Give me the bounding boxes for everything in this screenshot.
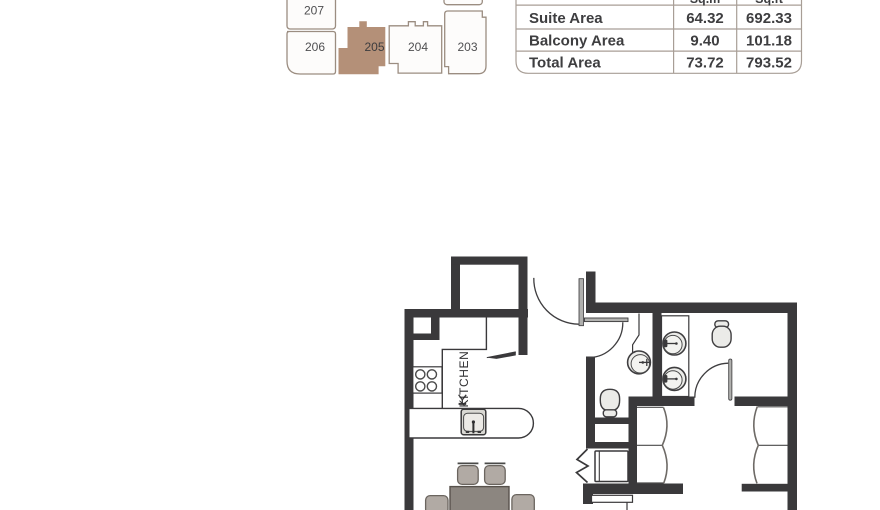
svg-text:73.72: 73.72 xyxy=(686,55,724,72)
svg-text:793.52: 793.52 xyxy=(746,55,792,72)
svg-text:205: 205 xyxy=(364,40,384,54)
svg-text:Sq.ft: Sq.ft xyxy=(755,0,784,6)
svg-text:692.33: 692.33 xyxy=(746,10,792,27)
svg-text:KITCHEN: KITCHEN xyxy=(457,351,471,408)
svg-text:207: 207 xyxy=(304,4,324,18)
svg-text:203: 203 xyxy=(457,40,477,54)
svg-text:Suite Area: Suite Area xyxy=(529,10,603,27)
svg-text:64.32: 64.32 xyxy=(686,10,724,27)
svg-text:Sq.m: Sq.m xyxy=(690,0,721,6)
svg-text:9.40: 9.40 xyxy=(690,33,719,50)
svg-text:206: 206 xyxy=(305,40,325,54)
svg-text:Balcony Area: Balcony Area xyxy=(529,33,625,50)
svg-text:204: 204 xyxy=(408,40,428,54)
svg-text:101.18: 101.18 xyxy=(746,33,792,50)
svg-text:Total Area: Total Area xyxy=(529,55,601,72)
